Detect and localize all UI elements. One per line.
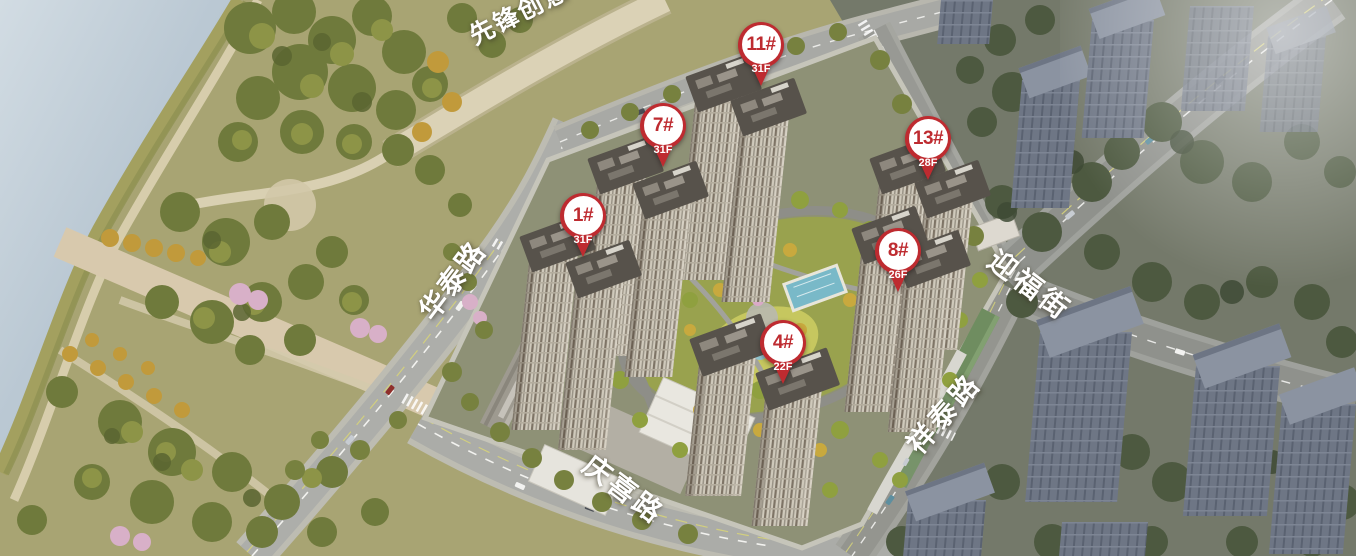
building-floors: 31F <box>557 235 609 246</box>
building-number: 1# <box>564 196 603 235</box>
building-floors: 31F <box>735 64 787 75</box>
building-floors: 22F <box>757 362 809 373</box>
building-number: 8# <box>879 231 918 270</box>
site-aerial-rendering <box>0 0 1356 556</box>
building-floors: 28F <box>902 158 954 169</box>
haze-overlay <box>1060 0 1356 320</box>
building-floors: 26F <box>872 270 924 281</box>
building-marker-13[interactable]: 13# 28F <box>902 116 954 190</box>
building-marker-1[interactable]: 1# 31F <box>557 193 609 267</box>
building-floors: 31F <box>637 145 689 156</box>
building-marker-8[interactable]: 8# 26F <box>872 228 924 302</box>
building-marker-4[interactable]: 4# 22F <box>757 320 809 394</box>
building-number: 7# <box>644 106 683 145</box>
building-marker-11[interactable]: 11# 31F <box>735 22 787 96</box>
building-marker-7[interactable]: 7# 31F <box>637 103 689 177</box>
building-number: 13# <box>909 119 948 158</box>
building-number: 11# <box>742 25 781 64</box>
building-number: 4# <box>764 323 803 362</box>
